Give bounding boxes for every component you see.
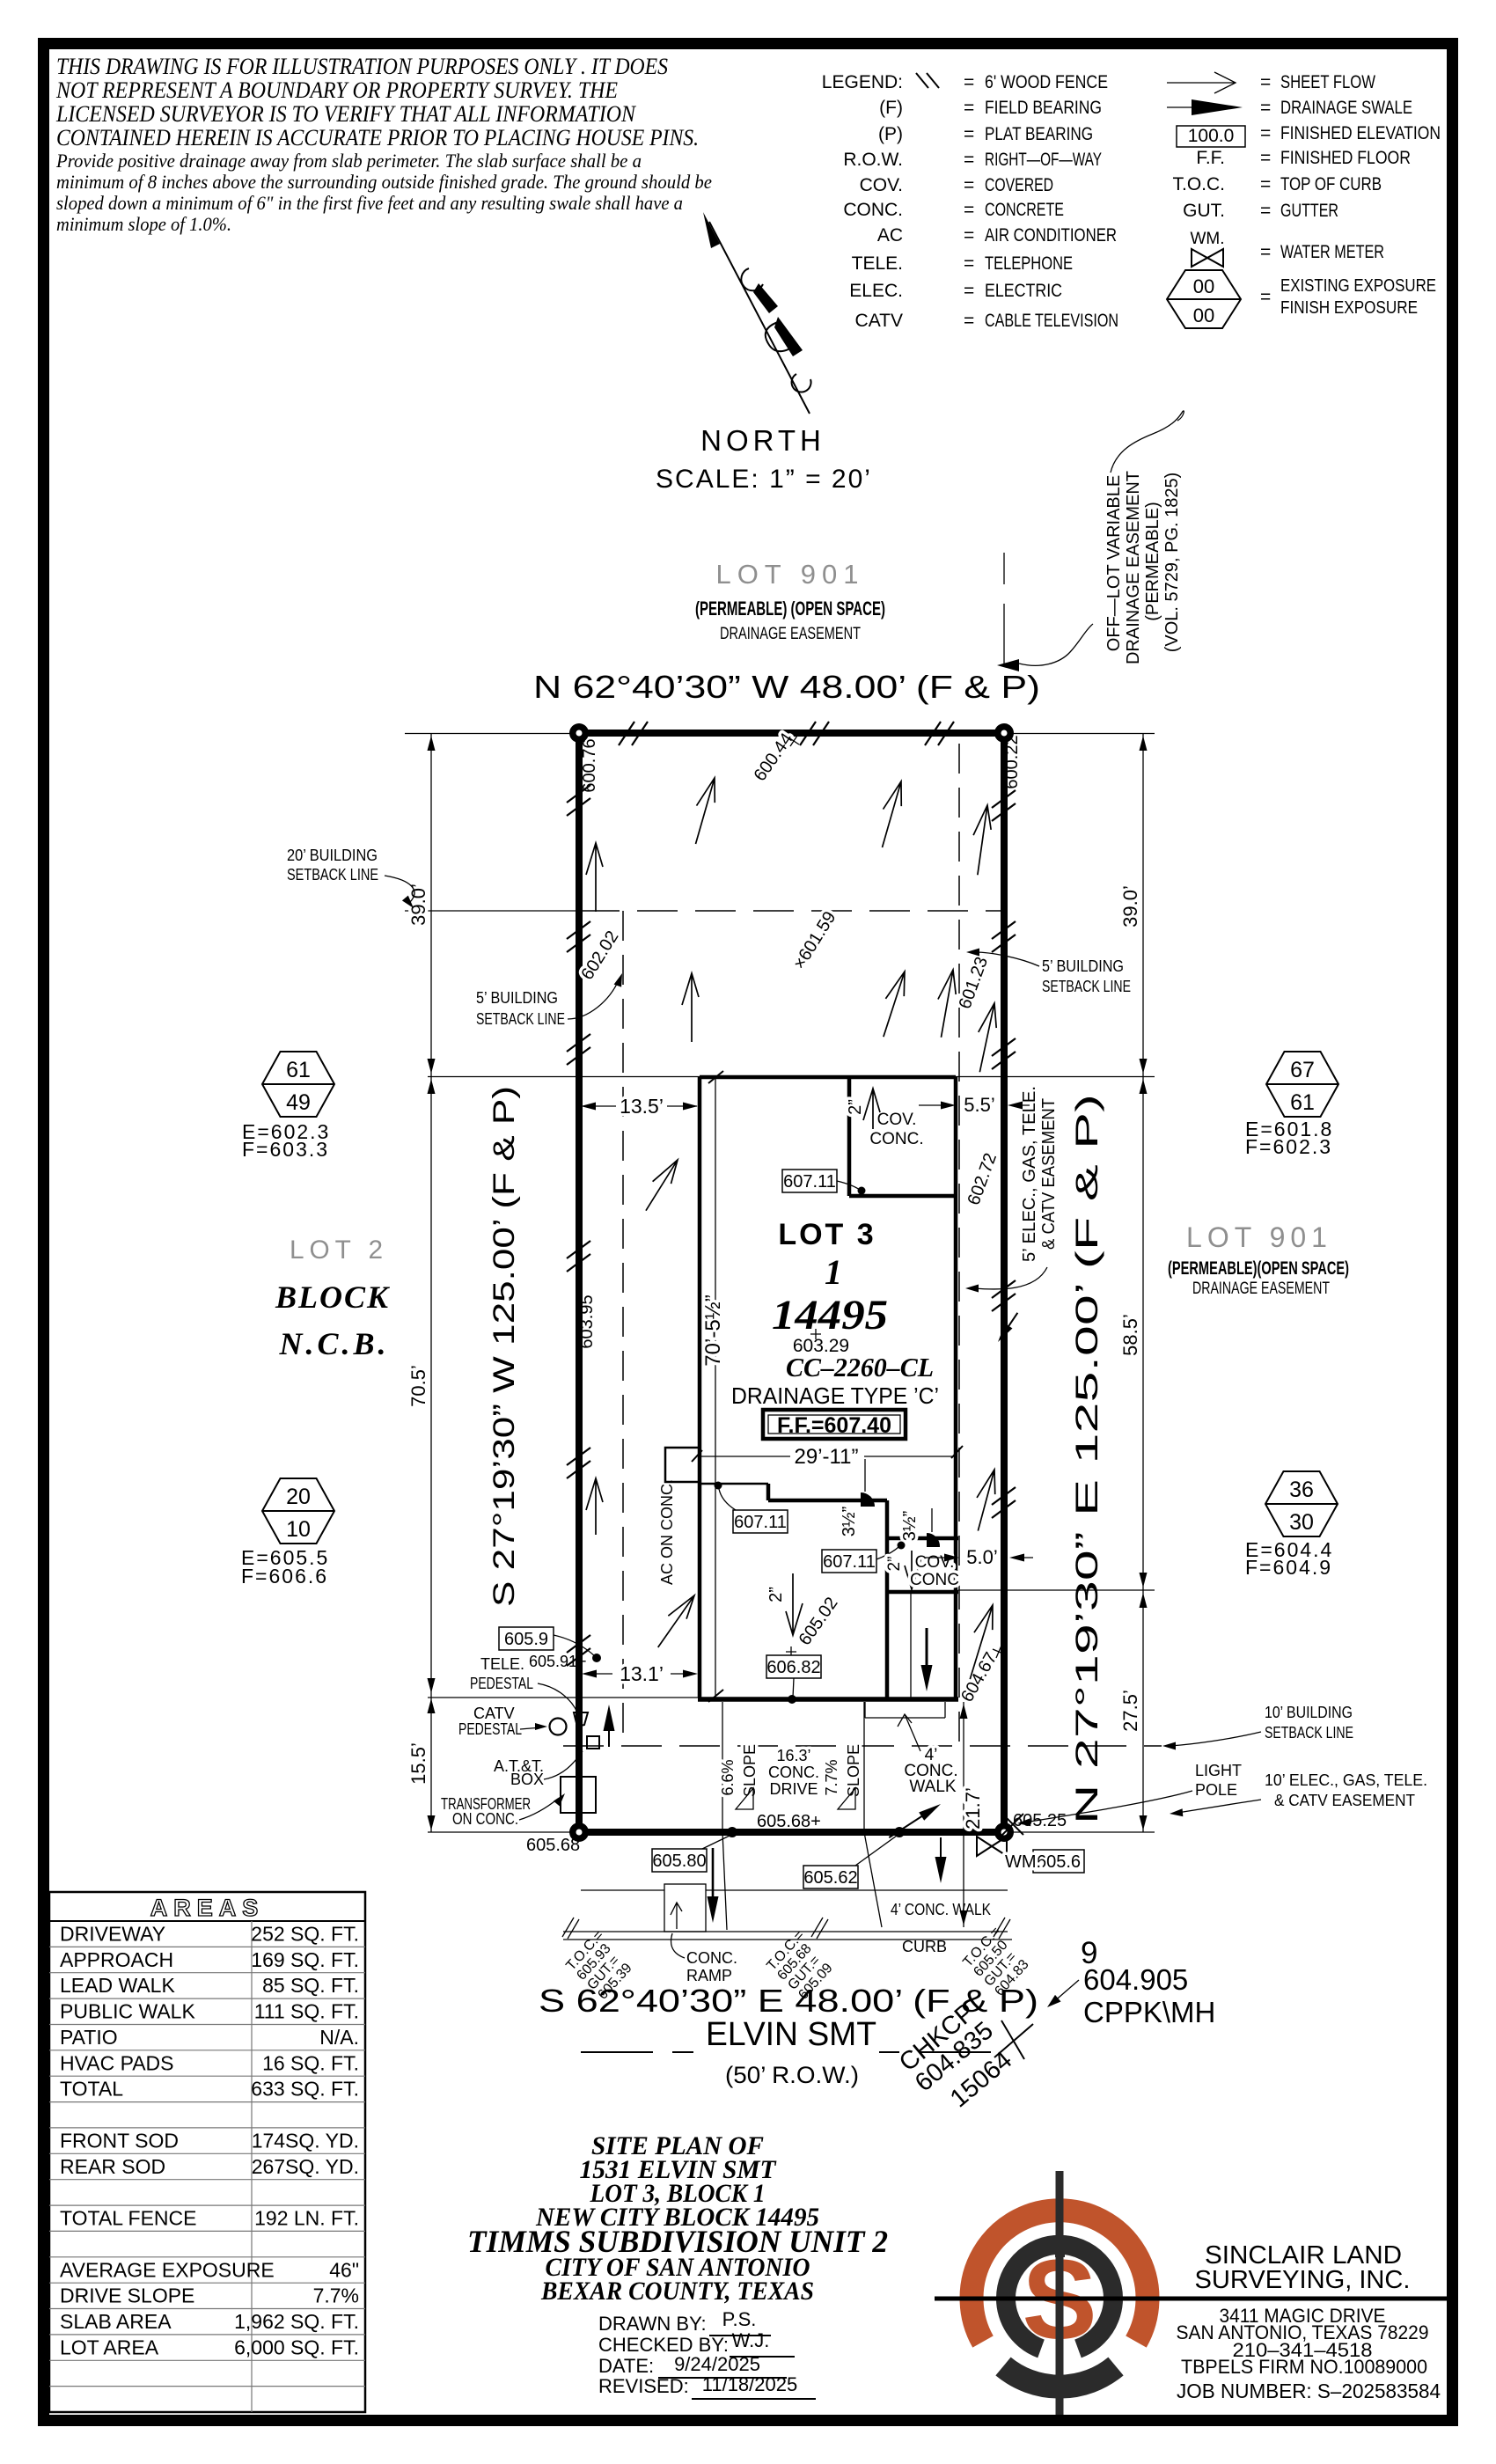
svg-text:sloped down a minimum of 6" in: sloped down a minimum of 6" in the first…	[56, 192, 683, 214]
svg-text:P.S.: P.S.	[722, 2308, 757, 2330]
svg-text:=: =	[1260, 287, 1271, 307]
svg-text:=: =	[964, 98, 974, 118]
svg-text:N 27°19’30” E 125.00’ (F & P): N 27°19’30” E 125.00’ (F & P)	[1070, 1094, 1104, 1824]
svg-text:SLAB AREA: SLAB AREA	[60, 2310, 172, 2333]
svg-text:=: =	[964, 124, 974, 144]
svg-text:COVERED: COVERED	[985, 175, 1053, 195]
svg-text:70.5’: 70.5’	[407, 1365, 429, 1407]
svg-text:FIELD BEARING: FIELD BEARING	[985, 98, 1102, 118]
svg-text:CPPK\MH: CPPK\MH	[1083, 1996, 1215, 2028]
svg-text:(VOL. 5729, PG. 1825): (VOL. 5729, PG. 1825)	[1162, 473, 1182, 653]
svg-text:SETBACK LINE: SETBACK LINE	[476, 1010, 565, 1028]
svg-text:174SQ. YD.: 174SQ. YD.	[252, 2129, 359, 2152]
svg-text:605.6: 605.6	[1037, 1852, 1081, 1872]
svg-text:SURVEYING, INC.: SURVEYING, INC.	[1195, 2266, 1411, 2294]
svg-text:169 SQ. FT.: 169 SQ. FT.	[251, 1948, 359, 1971]
svg-text:27.5’: 27.5’	[1119, 1690, 1141, 1732]
svg-text:TELE.: TELE.	[480, 1655, 524, 1673]
svg-text:F=604.9: F=604.9	[1245, 1556, 1332, 1579]
svg-text:5’ ELEC., GAS, TELE.: 5’ ELEC., GAS, TELE.	[1020, 1086, 1039, 1262]
svg-text:2”: 2”	[846, 1099, 865, 1115]
svg-text:REVISED:: REVISED:	[598, 2375, 689, 2397]
svg-text:POLE: POLE	[1195, 1781, 1237, 1799]
svg-text:16 SQ. FT.: 16 SQ. FT.	[262, 2051, 359, 2074]
svg-text:N.C.B.: N.C.B.	[278, 1326, 389, 1361]
svg-text:& CATV EASEMENT: & CATV EASEMENT	[1039, 1098, 1059, 1250]
svg-text:9/24/2025: 9/24/2025	[674, 2353, 760, 2375]
svg-text:WATER METER: WATER METER	[1280, 242, 1384, 262]
svg-text:6' WOOD FENCE: 6' WOOD FENCE	[985, 72, 1108, 92]
svg-text:CONC.: CONC.	[768, 1764, 819, 1781]
svg-text:603.95: 603.95	[577, 1294, 597, 1348]
svg-text:67: 67	[1290, 1058, 1315, 1082]
svg-text:5.0’: 5.0’	[966, 1546, 997, 1568]
svg-text:BOX: BOX	[510, 1771, 544, 1788]
svg-text:FINISH EXPOSURE: FINISH EXPOSURE	[1280, 298, 1418, 318]
svg-text:=: =	[964, 253, 974, 274]
svg-text:THIS DRAWING IS FOR ILLUSTRATI: THIS DRAWING IS FOR ILLUSTRATION PURPOSE…	[56, 54, 668, 79]
svg-text:LOT 901: LOT 901	[715, 559, 864, 590]
svg-text:CATV: CATV	[473, 1705, 515, 1722]
svg-text:F.F.: F.F.	[1196, 148, 1225, 168]
svg-text:7.7%: 7.7%	[313, 2284, 359, 2307]
svg-text:PATIO: PATIO	[60, 2026, 118, 2049]
svg-text:FINISHED FLOOR: FINISHED FLOOR	[1280, 148, 1411, 168]
svg-text:N 62°40’30” W 48.00’ (F & P): N 62°40’30” W 48.00’ (F & P)	[533, 669, 1040, 705]
svg-text:COV.: COV.	[860, 175, 903, 195]
svg-text:605.68: 605.68	[526, 1836, 580, 1855]
svg-text:6.6%: 6.6%	[719, 1759, 737, 1795]
svg-text:00: 00	[1193, 304, 1214, 326]
svg-text:NOT REPRESENT A BOUNDARY OR PR: NOT REPRESENT A BOUNDARY OR PROPERTY SUR…	[55, 77, 618, 103]
svg-text:ELECTRIC: ELECTRIC	[985, 281, 1062, 301]
svg-text:AVERAGE EXPOSURE: AVERAGE EXPOSURE	[60, 2258, 275, 2281]
svg-text:BLOCK: BLOCK	[275, 1280, 391, 1315]
svg-text:605.9: 605.9	[504, 1630, 548, 1649]
svg-text:606.82: 606.82	[766, 1658, 820, 1677]
svg-text:SLOPE: SLOPE	[845, 1744, 862, 1797]
svg-text:T.O.C.: T.O.C.	[1172, 174, 1225, 194]
svg-text:CURB: CURB	[902, 1938, 947, 1955]
svg-text:F=602.3: F=602.3	[1245, 1135, 1332, 1158]
svg-text:3½”: 3½”	[840, 1507, 859, 1536]
svg-text:633 SQ. FT.: 633 SQ. FT.	[251, 2078, 359, 2101]
svg-text:267SQ. YD.: 267SQ. YD.	[252, 2155, 359, 2178]
svg-text:ELVIN SMT: ELVIN SMT	[706, 2016, 876, 2053]
svg-text:CONCRETE: CONCRETE	[985, 200, 1064, 220]
svg-text:605.91+: 605.91+	[529, 1653, 587, 1670]
svg-text:602.72: 602.72	[964, 1150, 1001, 1207]
svg-text:BEXAR COUNTY, TEXAS: BEXAR COUNTY, TEXAS	[540, 2277, 814, 2306]
svg-text:DRAINAGE EASEMENT: DRAINAGE EASEMENT	[1192, 1280, 1330, 1298]
svg-text:7.7%: 7.7%	[823, 1759, 840, 1795]
svg-text:WM.: WM.	[1005, 1852, 1041, 1872]
svg-text:29’-11”: 29’-11”	[795, 1445, 859, 1469]
svg-text:SETBACK LINE: SETBACK LINE	[1265, 1724, 1353, 1742]
svg-text:DRIVE: DRIVE	[769, 1780, 818, 1798]
svg-text:1: 1	[825, 1252, 842, 1292]
svg-text:=: =	[964, 200, 974, 220]
svg-text:20: 20	[286, 1485, 311, 1509]
svg-text:JOB NUMBER: S–202583584: JOB NUMBER: S–202583584	[1177, 2380, 1441, 2402]
svg-text:=: =	[1260, 98, 1271, 118]
svg-text:00: 00	[1193, 275, 1214, 297]
svg-text:11/18/2025: 11/18/2025	[702, 2373, 797, 2395]
svg-text:14495: 14495	[772, 1292, 888, 1338]
svg-text:252 SQ. FT.: 252 SQ. FT.	[251, 1923, 359, 1946]
svg-text:10’ ELEC., GAS, TELE.: 10’ ELEC., GAS, TELE.	[1265, 1771, 1427, 1789]
svg-text:ELEC.: ELEC.	[849, 281, 903, 301]
svg-text:APPROACH: APPROACH	[60, 1948, 173, 1971]
svg-text:5’ BUILDING: 5’ BUILDING	[476, 989, 558, 1007]
svg-text:DRAINAGE EASEMENT: DRAINAGE EASEMENT	[1124, 471, 1143, 664]
svg-text:LICENSED SURVEYOR IS TO VERIFY: LICENSED SURVEYOR IS TO VERIFY THAT ALL …	[55, 101, 636, 127]
svg-text:3½”: 3½”	[900, 1511, 920, 1541]
svg-text:605.02: 605.02	[796, 1594, 842, 1649]
svg-text:DATE:: DATE:	[598, 2355, 654, 2377]
svg-text:10: 10	[286, 1517, 311, 1542]
svg-text:=: =	[1260, 201, 1271, 221]
svg-text:AIR CONDITIONER: AIR CONDITIONER	[985, 225, 1117, 246]
svg-text:604.905: 604.905	[1083, 1963, 1188, 1996]
svg-text:& CATV EASEMENT: & CATV EASEMENT	[1274, 1792, 1415, 1809]
svg-text:F.F.=607.40: F.F.=607.40	[777, 1413, 891, 1438]
svg-text:=: =	[964, 72, 974, 92]
svg-text:RAMP: RAMP	[686, 1967, 732, 1984]
svg-text:CONC.: CONC.	[843, 200, 903, 220]
svg-text:CONTAINED HEREIN IS ACCURATE P: CONTAINED HEREIN IS ACCURATE PRIOR TO PL…	[56, 125, 699, 150]
svg-text:(PERMEABLE) (OPEN SPACE): (PERMEABLE) (OPEN SPACE)	[695, 598, 885, 620]
svg-text:(PERMEABLE): (PERMEABLE)	[1143, 502, 1162, 621]
svg-text:602.02: 602.02	[577, 928, 622, 984]
svg-text:TBPELS FIRM NO.10089000: TBPELS FIRM NO.10089000	[1181, 2356, 1427, 2378]
svg-text:LOT AREA: LOT AREA	[60, 2336, 159, 2358]
svg-text:2”: 2”	[885, 1557, 904, 1572]
svg-text:W.J.: W.J.	[732, 2329, 770, 2351]
svg-text:OFF—LOT VARIABLE: OFF—LOT VARIABLE	[1104, 475, 1124, 651]
svg-text:TOP OF CURB: TOP OF CURB	[1280, 174, 1382, 194]
svg-text:20’ BUILDING: 20’ BUILDING	[287, 847, 378, 864]
svg-text:5’ BUILDING: 5’ BUILDING	[1042, 957, 1124, 975]
svg-text:SHEET FLOW: SHEET FLOW	[1280, 72, 1375, 92]
svg-text:2”: 2”	[766, 1587, 786, 1602]
svg-text:TOTAL: TOTAL	[60, 2078, 123, 2101]
svg-text:607.11: 607.11	[783, 1172, 836, 1192]
svg-text:LOT 2: LOT 2	[290, 1236, 388, 1265]
svg-text:Provide positive drainage away: Provide positive drainage away from slab…	[55, 150, 642, 172]
svg-text:GUT.: GUT.	[1183, 201, 1225, 221]
svg-text:ON CONC.: ON CONC.	[452, 1810, 518, 1828]
svg-text:LIGHT: LIGHT	[1195, 1762, 1242, 1779]
svg-text:1,962 SQ. FT.: 1,962 SQ. FT.	[234, 2310, 359, 2333]
svg-text:605.25: 605.25	[1013, 1811, 1067, 1830]
svg-text:100.0: 100.0	[1188, 126, 1235, 146]
svg-text:=: =	[964, 150, 974, 170]
svg-text:70’-5½”: 70’-5½”	[701, 1294, 725, 1366]
svg-text:CABLE TELEVISION: CABLE TELEVISION	[985, 311, 1118, 331]
svg-text:TELE.: TELE.	[852, 253, 903, 274]
svg-text:(F): (F)	[879, 98, 903, 118]
svg-text:COV.: COV.	[877, 1111, 917, 1129]
svg-text:SETBACK LINE: SETBACK LINE	[287, 866, 378, 884]
svg-text:LEGEND:: LEGEND:	[822, 72, 903, 92]
svg-text:RIGHT—OF—WAY: RIGHT—OF—WAY	[985, 150, 1102, 170]
svg-text:DRIVEWAY: DRIVEWAY	[60, 1923, 165, 1946]
svg-text:PEDESTAL: PEDESTAL	[458, 1720, 522, 1738]
svg-text:61: 61	[286, 1058, 311, 1082]
svg-text:NORTH: NORTH	[700, 424, 825, 457]
svg-text:192 LN. FT.: 192 LN. FT.	[254, 2207, 359, 2230]
svg-text:6,000 SQ. FT.: 6,000 SQ. FT.	[234, 2336, 359, 2358]
svg-text:111 SQ. FT.: 111 SQ. FT.	[254, 2000, 359, 2023]
svg-text:=: =	[964, 281, 974, 301]
svg-text:WALK: WALK	[909, 1778, 956, 1796]
svg-text:CATV: CATV	[855, 311, 903, 331]
svg-text:F=606.6: F=606.6	[241, 1565, 328, 1588]
svg-text:R.O.W.: R.O.W.	[843, 150, 903, 170]
svg-text:×601.59: ×601.59	[789, 908, 840, 972]
svg-text:DRAWN BY:: DRAWN BY:	[598, 2313, 707, 2335]
svg-text:HVAC PADS: HVAC PADS	[60, 2051, 174, 2074]
svg-text:=: =	[1260, 123, 1271, 143]
svg-text:607.11: 607.11	[823, 1552, 876, 1572]
svg-text:DRIVE SLOPE: DRIVE SLOPE	[60, 2284, 194, 2307]
svg-text:13.1’: 13.1’	[620, 1662, 664, 1685]
svg-text:CONC.: CONC.	[686, 1949, 737, 1967]
svg-text:=: =	[964, 175, 974, 195]
svg-text:36: 36	[1289, 1478, 1314, 1502]
svg-text:61: 61	[1290, 1090, 1315, 1115]
svg-text:10’ BUILDING: 10’ BUILDING	[1265, 1704, 1353, 1721]
svg-text:PEDESTAL: PEDESTAL	[470, 1675, 533, 1692]
svg-text:600.76: 600.76	[580, 738, 599, 792]
svg-text:minimum of 8 inches above the: minimum of 8 inches above the surroundin…	[56, 171, 712, 193]
svg-text:607.11: 607.11	[734, 1513, 787, 1532]
svg-text:REAR SOD: REAR SOD	[60, 2155, 165, 2178]
svg-text:SETBACK LINE: SETBACK LINE	[1042, 978, 1131, 995]
svg-text:604.67: 604.67	[957, 1649, 1001, 1705]
svg-text:PUBLIC WALK: PUBLIC WALK	[60, 2000, 195, 2023]
svg-text:601.23: 601.23	[956, 954, 993, 1011]
svg-text:49: 49	[286, 1090, 311, 1115]
svg-text:PLAT BEARING: PLAT BEARING	[985, 124, 1093, 144]
svg-text:CC–2260–CL: CC–2260–CL	[786, 1352, 934, 1382]
svg-text:39.0’: 39.0’	[1119, 885, 1141, 928]
svg-text:21.7’: 21.7’	[962, 1787, 984, 1830]
svg-text:=: =	[964, 225, 974, 246]
svg-text:EXISTING EXPOSURE: EXISTING EXPOSURE	[1280, 276, 1436, 296]
svg-text:(PERMEABLE)(OPEN SPACE): (PERMEABLE)(OPEN SPACE)	[1168, 1258, 1349, 1279]
svg-text:GUTTER: GUTTER	[1280, 201, 1338, 221]
svg-text:AREAS: AREAS	[150, 1895, 265, 1921]
svg-text:WM.: WM.	[1190, 230, 1224, 248]
svg-text:minimum slope of 1.0%.: minimum slope of 1.0%.	[56, 213, 231, 235]
svg-text:DRAINAGE TYPE ’C’: DRAINAGE TYPE ’C’	[731, 1382, 939, 1409]
svg-text:=: =	[1260, 174, 1271, 194]
svg-text:46": 46"	[329, 2258, 359, 2281]
svg-text:85 SQ. FT.: 85 SQ. FT.	[262, 1974, 359, 1997]
svg-text:N/A.: N/A.	[319, 2026, 359, 2049]
svg-text:=: =	[1260, 148, 1271, 168]
svg-text:AC: AC	[877, 225, 903, 246]
svg-text:DRAINAGE EASEMENT: DRAINAGE EASEMENT	[720, 625, 861, 643]
svg-text:600.22: 600.22	[1002, 735, 1022, 788]
svg-text:605.68+: 605.68+	[757, 1812, 821, 1831]
svg-text:13.5’: 13.5’	[620, 1095, 664, 1118]
svg-text:15.5’: 15.5’	[407, 1742, 429, 1785]
svg-text:S 27°19’30” W 125.00’ (F & P): S 27°19’30” W 125.00’ (F & P)	[488, 1086, 521, 1607]
svg-text:(50’ R.O.W.): (50’ R.O.W.)	[725, 2062, 859, 2088]
svg-text:CONC.: CONC.	[869, 1130, 923, 1148]
svg-text:TELEPHONE: TELEPHONE	[985, 253, 1073, 274]
svg-text:TOTAL FENCE: TOTAL FENCE	[60, 2207, 197, 2230]
svg-text:LOT 901: LOT 901	[1186, 1221, 1332, 1253]
svg-text:58.5’: 58.5’	[1119, 1314, 1141, 1356]
svg-text:=: =	[1260, 242, 1271, 262]
svg-text:605.80: 605.80	[652, 1852, 706, 1871]
svg-text:FRONT SOD: FRONT SOD	[60, 2129, 179, 2152]
svg-text:FINISHED ELEVATION: FINISHED ELEVATION	[1280, 123, 1441, 143]
svg-text:DRAINAGE SWALE: DRAINAGE SWALE	[1280, 98, 1412, 118]
svg-text:=: =	[1260, 72, 1271, 92]
svg-text:=: =	[964, 311, 974, 331]
svg-text:SLOPE: SLOPE	[741, 1744, 759, 1797]
svg-text:30: 30	[1289, 1510, 1314, 1535]
svg-text:SCALE: 1” = 20’: SCALE: 1” = 20’	[656, 465, 872, 494]
svg-text:LOT 3: LOT 3	[778, 1218, 876, 1251]
svg-text:AC ON CONC.: AC ON CONC.	[658, 1479, 676, 1585]
svg-text:16.3’: 16.3’	[776, 1747, 810, 1764]
svg-text:CONC: CONC	[910, 1571, 959, 1589]
svg-text:4’ CONC. WALK: 4’ CONC. WALK	[891, 1901, 991, 1918]
svg-text:F=603.3: F=603.3	[242, 1138, 329, 1161]
svg-text:LEAD WALK: LEAD WALK	[60, 1974, 175, 1997]
svg-text:605.62: 605.62	[803, 1868, 857, 1888]
svg-text:(P): (P)	[878, 124, 903, 144]
svg-text:5.5’: 5.5’	[964, 1094, 994, 1116]
